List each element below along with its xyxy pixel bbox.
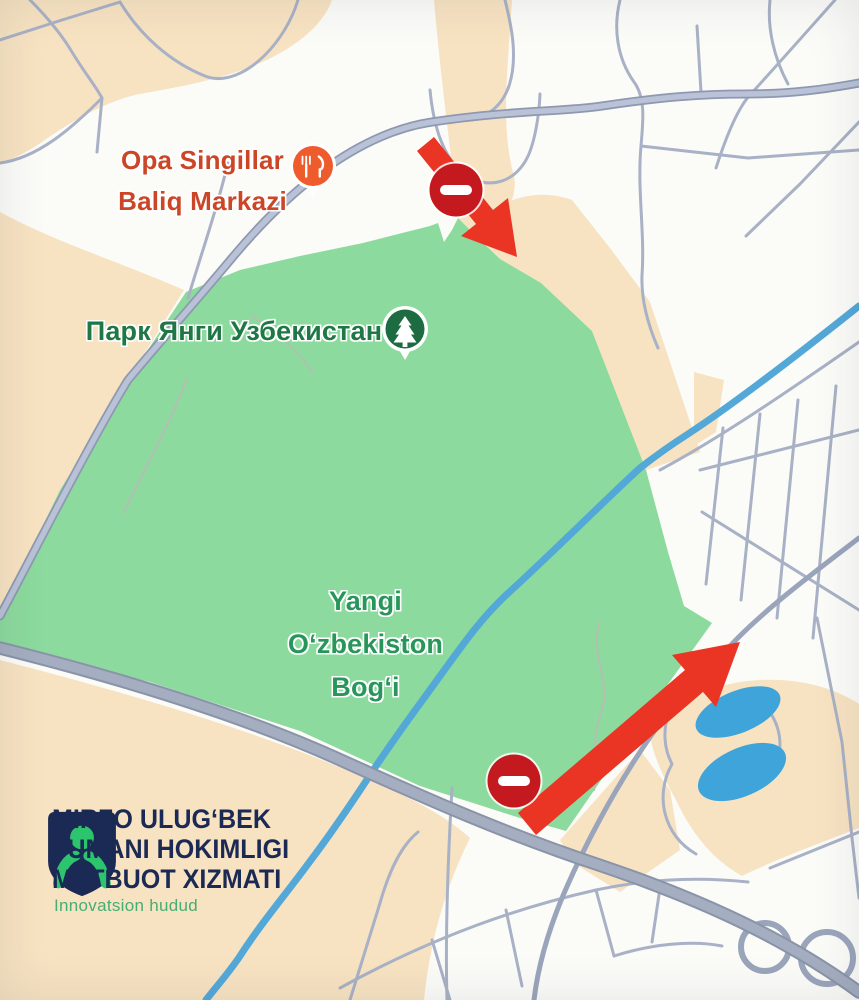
logo-org-line: MIRZO ULUG‘BEK: [52, 804, 289, 834]
logo-org-line: MATBUOT XIZMATI: [52, 864, 289, 894]
organization-logo: MIRZO ULUG‘BEK TUMANI HOKIMLIGI MATBUOT …: [42, 804, 307, 916]
park-pin-label: Парк Янги Узбекистан: [78, 316, 390, 347]
map-poster: Opa Singillar Baliq Markazi Парк Янги Уз…: [0, 0, 859, 1000]
logo-text-block: MIRZO ULUG‘BEK TUMANI HOKIMLIGI MATBUOT …: [52, 804, 307, 916]
restaurant-label: Opa Singillar Baliq Markazi: [105, 140, 300, 222]
logo-tagline: Innovatsion hudud: [52, 896, 307, 916]
no-entry-icon-north: [428, 162, 485, 219]
park-area-label: Yangi O‘zbekiston Bog‘i: [258, 580, 473, 709]
no-entry-icon-south: [486, 753, 543, 810]
logo-org-line: TUMANI HOKIMLIGI: [52, 834, 289, 864]
